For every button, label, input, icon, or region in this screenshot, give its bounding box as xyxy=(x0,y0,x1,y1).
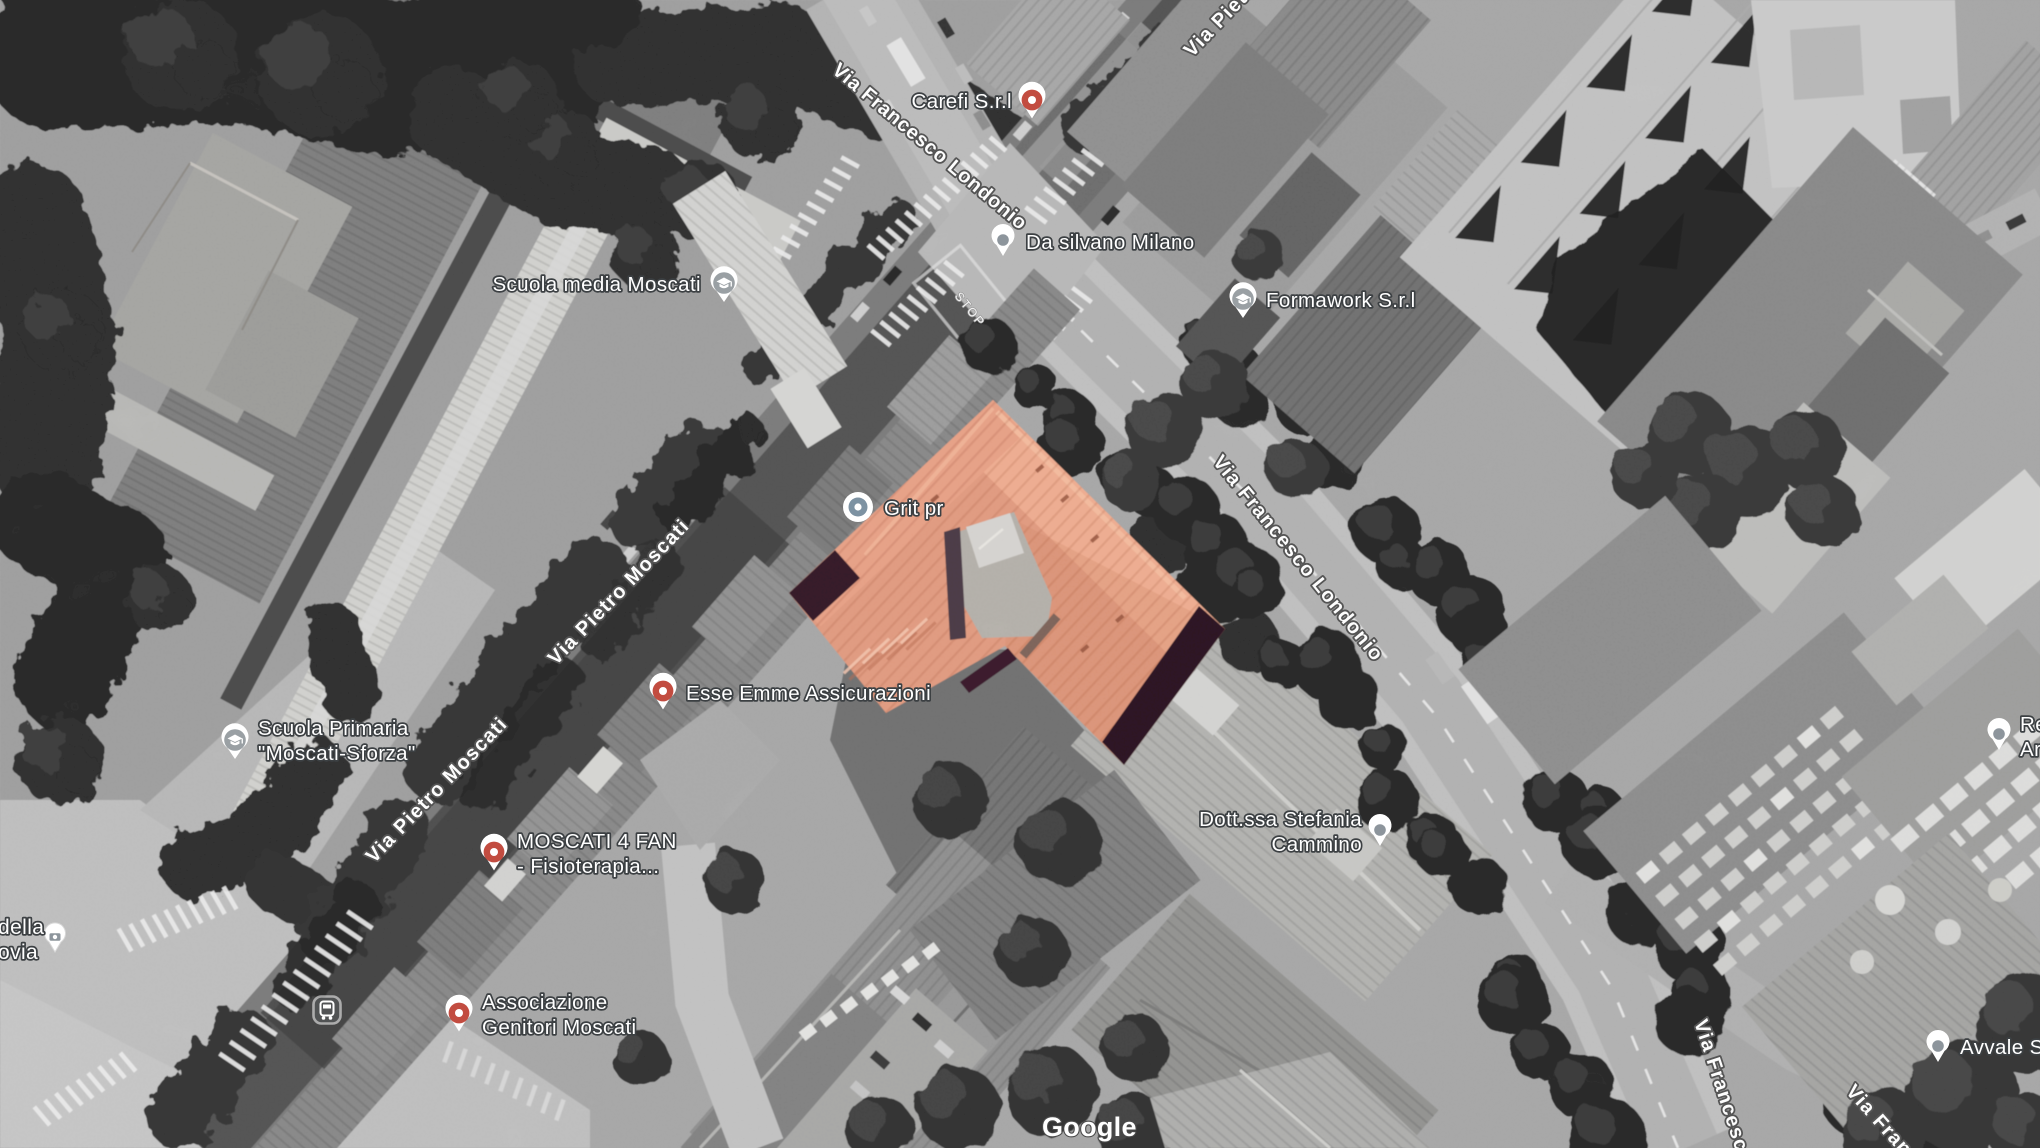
svg-text:Scuola Primaria: Scuola Primaria xyxy=(258,717,409,740)
svg-text:Avvale S.p...: Avvale S.p... xyxy=(1960,1036,2040,1059)
svg-text:della: della xyxy=(0,916,44,939)
svg-text:MOSCATI 4 FAN: MOSCATI 4 FAN xyxy=(517,830,677,853)
svg-text:ovia: ovia xyxy=(0,941,38,964)
svg-text:Cammino: Cammino xyxy=(1271,833,1362,856)
svg-text:- Fisioterapia...: - Fisioterapia... xyxy=(517,855,659,878)
svg-text:Scuola media Moscati: Scuola media Moscati xyxy=(492,273,701,296)
svg-text:Formawork S.r.l: Formawork S.r.l xyxy=(1266,289,1416,312)
svg-text:Res: Res xyxy=(2020,713,2040,736)
svg-text:Arco: Arco xyxy=(2020,738,2040,761)
svg-text:Grit pr: Grit pr xyxy=(884,497,944,520)
svg-text:Associazione: Associazione xyxy=(482,991,608,1014)
svg-text:Carefi S.r.l: Carefi S.r.l xyxy=(912,90,1013,113)
svg-text:Genitori Moscati: Genitori Moscati xyxy=(482,1016,637,1039)
svg-text:Esse Emme Assicurazioni: Esse Emme Assicurazioni xyxy=(686,682,931,705)
svg-text:Google: Google xyxy=(1042,1112,1137,1142)
svg-text:Da silvano Milano: Da silvano Milano xyxy=(1026,231,1195,254)
svg-text:"Moscati-Sforza": "Moscati-Sforza" xyxy=(258,742,416,765)
svg-text:Dott.ssa Stefania: Dott.ssa Stefania xyxy=(1199,808,1362,831)
